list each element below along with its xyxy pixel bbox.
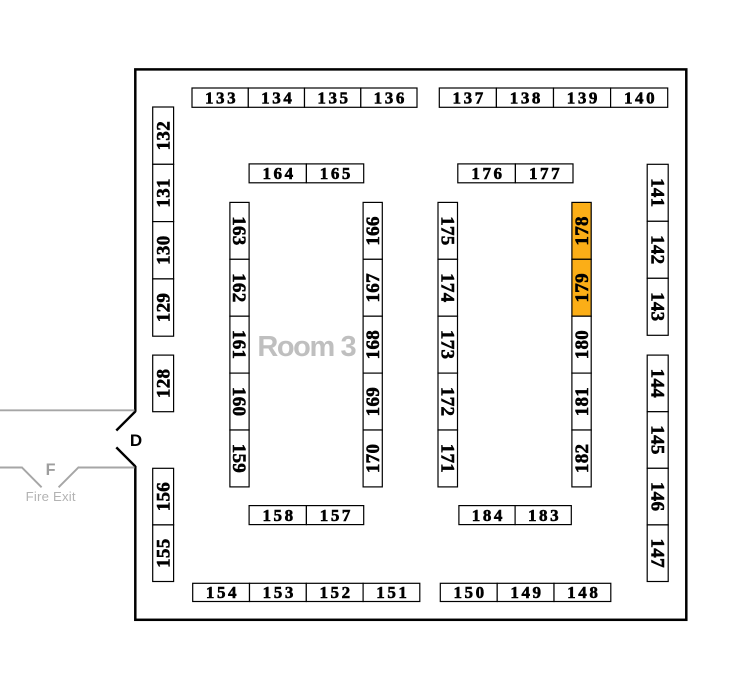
svg-text:146: 146	[646, 482, 667, 511]
svg-text:157: 157	[320, 506, 353, 525]
svg-text:151: 151	[376, 583, 409, 602]
svg-text:168: 168	[363, 330, 384, 359]
svg-text:144: 144	[646, 369, 667, 399]
svg-text:139: 139	[567, 89, 600, 108]
svg-text:171: 171	[436, 444, 457, 473]
svg-text:184: 184	[472, 506, 505, 525]
svg-text:134: 134	[261, 89, 294, 108]
svg-text:136: 136	[374, 89, 407, 108]
svg-text:F: F	[46, 461, 56, 479]
svg-text:181: 181	[572, 387, 593, 416]
svg-text:155: 155	[153, 538, 174, 567]
svg-text:180: 180	[572, 330, 593, 359]
svg-text:166: 166	[363, 216, 384, 245]
svg-text:179: 179	[572, 273, 593, 302]
svg-text:150: 150	[453, 583, 486, 602]
svg-text:129: 129	[154, 293, 175, 322]
svg-text:133: 133	[205, 89, 238, 108]
svg-text:145: 145	[646, 425, 667, 454]
svg-text:174: 174	[436, 273, 457, 303]
svg-text:128: 128	[154, 369, 175, 398]
svg-text:182: 182	[572, 444, 593, 473]
svg-text:167: 167	[363, 273, 384, 303]
svg-text:142: 142	[646, 235, 667, 264]
svg-text:162: 162	[228, 273, 249, 302]
svg-text:Fire Exit: Fire Exit	[26, 489, 76, 504]
svg-text:165: 165	[320, 164, 353, 183]
svg-text:148: 148	[567, 583, 600, 602]
svg-text:Room 3: Room 3	[257, 331, 356, 363]
svg-text:137: 137	[453, 89, 486, 108]
svg-text:177: 177	[529, 164, 562, 183]
svg-text:164: 164	[262, 164, 295, 183]
svg-text:140: 140	[624, 89, 657, 108]
svg-text:172: 172	[437, 387, 458, 416]
svg-text:178: 178	[572, 216, 593, 245]
svg-text:131: 131	[154, 178, 175, 207]
svg-text:D: D	[130, 431, 142, 450]
svg-text:130: 130	[154, 235, 175, 264]
svg-text:132: 132	[154, 121, 175, 150]
svg-text:141: 141	[646, 178, 667, 207]
svg-text:147: 147	[646, 538, 667, 568]
svg-text:159: 159	[228, 444, 249, 473]
svg-text:175: 175	[436, 216, 457, 245]
svg-text:161: 161	[228, 330, 249, 359]
svg-text:169: 169	[363, 387, 384, 416]
svg-text:176: 176	[471, 164, 504, 183]
svg-text:149: 149	[510, 583, 543, 602]
svg-text:160: 160	[228, 387, 249, 416]
svg-text:135: 135	[317, 89, 350, 108]
svg-text:156: 156	[154, 482, 175, 511]
svg-text:173: 173	[436, 330, 457, 359]
svg-text:143: 143	[646, 292, 667, 321]
svg-text:138: 138	[510, 89, 543, 108]
svg-text:170: 170	[363, 444, 384, 473]
svg-text:163: 163	[228, 216, 249, 245]
svg-text:152: 152	[319, 583, 352, 602]
svg-text:154: 154	[206, 583, 239, 602]
svg-text:183: 183	[528, 506, 561, 525]
svg-text:158: 158	[262, 506, 295, 525]
svg-text:153: 153	[263, 583, 296, 602]
